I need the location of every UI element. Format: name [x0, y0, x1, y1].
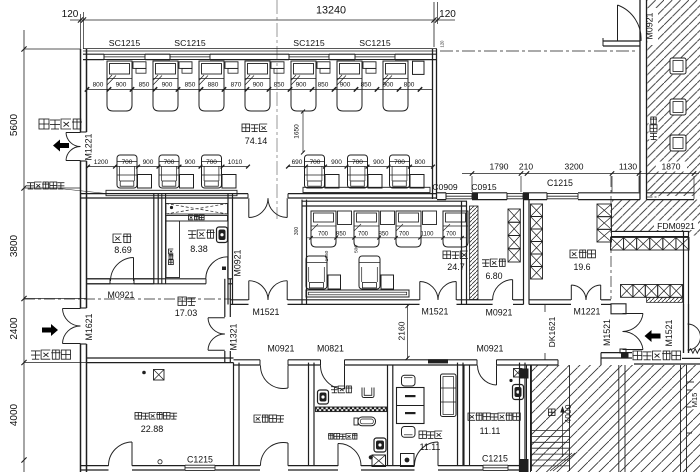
svg-text:700: 700 [394, 159, 405, 166]
svg-text:2160: 2160 [397, 321, 407, 340]
svg-text:700: 700 [318, 232, 329, 238]
svg-text:M0921: M0921 [645, 12, 655, 39]
svg-text:870: 870 [231, 81, 242, 88]
svg-text:M1521: M1521 [253, 307, 280, 317]
svg-text:700: 700 [446, 232, 457, 238]
svg-text:17.03: 17.03 [175, 308, 198, 318]
svg-text:1650: 1650 [294, 124, 301, 139]
svg-text:4000: 4000 [563, 404, 573, 423]
svg-text:700: 700 [358, 232, 369, 238]
svg-text:850: 850 [139, 81, 150, 88]
svg-text:700: 700 [164, 159, 175, 166]
svg-text:22.88: 22.88 [141, 424, 164, 434]
svg-text:900: 900 [143, 159, 154, 166]
svg-text:M0921: M0921 [268, 344, 295, 354]
svg-text:1050: 1050 [324, 250, 330, 261]
svg-text:700: 700 [310, 159, 321, 166]
svg-text:700: 700 [122, 159, 133, 166]
svg-text:M0921: M0921 [233, 249, 243, 276]
svg-text:SC1215: SC1215 [293, 38, 325, 48]
svg-text:1870: 1870 [662, 162, 681, 172]
svg-text:120: 120 [439, 9, 456, 20]
svg-text:19.6: 19.6 [573, 262, 590, 272]
svg-text:900: 900 [116, 81, 127, 88]
svg-text:1100: 1100 [421, 232, 435, 238]
svg-text:6.80: 6.80 [485, 271, 502, 281]
svg-text:1130: 1130 [619, 162, 638, 172]
svg-text:M1521: M1521 [664, 319, 674, 346]
svg-text:120: 120 [62, 9, 79, 20]
svg-text:74.14: 74.14 [245, 136, 268, 146]
svg-text:8.38: 8.38 [190, 244, 208, 254]
svg-text:4000: 4000 [9, 403, 20, 426]
svg-text:C1215: C1215 [482, 454, 508, 464]
svg-text:900: 900 [253, 81, 264, 88]
svg-text:SC1215: SC1215 [109, 38, 141, 48]
svg-text:120: 120 [440, 40, 445, 48]
svg-text:800: 800 [415, 159, 426, 166]
svg-text:M1321: M1321 [229, 323, 239, 350]
svg-text:880: 880 [208, 81, 219, 88]
svg-text:M0921: M0921 [108, 290, 135, 300]
svg-text:C1215: C1215 [187, 455, 213, 465]
svg-text:800: 800 [93, 81, 104, 88]
svg-text:500: 500 [354, 245, 360, 253]
svg-text:11.11: 11.11 [480, 426, 501, 436]
svg-text:FDM0921: FDM0921 [657, 221, 695, 231]
svg-text:900: 900 [383, 81, 394, 88]
svg-text:3800: 3800 [9, 234, 20, 257]
svg-text:850: 850 [274, 81, 285, 88]
svg-text:M1521: M1521 [422, 307, 449, 317]
svg-text:210: 210 [519, 162, 533, 172]
svg-text:900: 900 [185, 159, 196, 166]
svg-text:M15: M15 [690, 393, 699, 408]
svg-text:8.69: 8.69 [114, 245, 132, 255]
svg-text:900: 900 [296, 81, 307, 88]
svg-text:300: 300 [294, 227, 300, 236]
svg-text:700: 700 [399, 232, 410, 238]
svg-text:700: 700 [352, 159, 363, 166]
svg-text:900: 900 [340, 81, 351, 88]
svg-text:900: 900 [373, 159, 384, 166]
svg-text:3200: 3200 [565, 162, 584, 172]
svg-text:13240: 13240 [316, 5, 346, 17]
svg-text:DK1621: DK1621 [547, 316, 557, 347]
svg-text:800: 800 [404, 81, 415, 88]
svg-text:C0915: C0915 [471, 182, 497, 192]
svg-text:1790: 1790 [490, 162, 509, 172]
svg-text:C1215: C1215 [547, 178, 573, 188]
svg-text:SC1215: SC1215 [359, 38, 391, 48]
svg-text:M0821: M0821 [317, 344, 344, 354]
svg-text:5600: 5600 [9, 113, 20, 136]
svg-text:M1221: M1221 [574, 307, 601, 317]
svg-text:850: 850 [361, 81, 372, 88]
svg-text:24.7: 24.7 [447, 262, 465, 272]
svg-text:M1521: M1521 [602, 319, 612, 346]
svg-text:900: 900 [331, 159, 342, 166]
svg-text:M0921: M0921 [486, 308, 513, 318]
svg-text:1200: 1200 [94, 159, 109, 166]
svg-text:SC1215: SC1215 [174, 38, 206, 48]
svg-text:690: 690 [292, 159, 303, 166]
svg-text:850: 850 [318, 81, 329, 88]
svg-text:900: 900 [162, 81, 173, 88]
svg-text:M0921: M0921 [477, 344, 504, 354]
svg-text:M1621: M1621 [84, 313, 94, 340]
svg-text:700: 700 [206, 159, 217, 166]
svg-text:850: 850 [185, 81, 196, 88]
svg-text:C0909: C0909 [432, 182, 458, 192]
svg-text:M1221: M1221 [84, 133, 94, 160]
svg-text:2400: 2400 [9, 317, 20, 340]
svg-text:1010: 1010 [228, 159, 243, 166]
